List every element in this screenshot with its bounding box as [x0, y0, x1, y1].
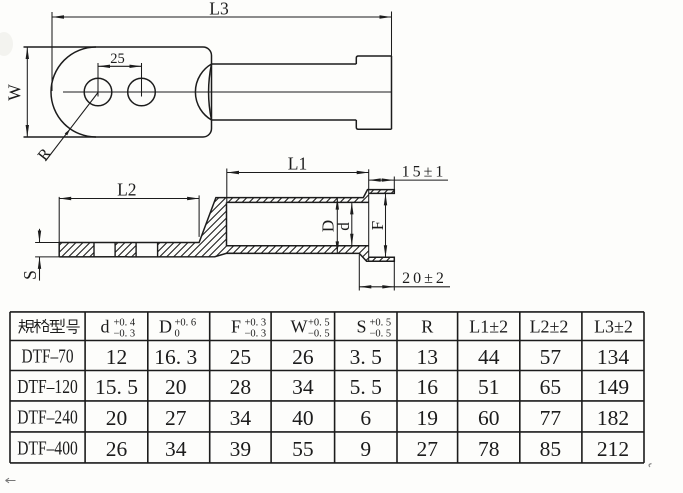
svg-text:F: F	[231, 317, 241, 337]
svg-text:16. 3: 16. 3	[154, 345, 197, 369]
svg-text:+0. 5: +0. 5	[308, 318, 330, 329]
svg-text:9: 9	[360, 437, 371, 461]
svg-text:26: 26	[106, 437, 128, 461]
svg-text:212: 212	[597, 437, 629, 461]
svg-text:34: 34	[230, 406, 252, 430]
svg-text:L2: L2	[117, 180, 136, 200]
svg-text:d: d	[334, 222, 353, 231]
svg-text:78: 78	[478, 437, 500, 461]
svg-text:DTF–120: DTF–120	[17, 377, 78, 398]
svg-text:40: 40	[292, 406, 314, 430]
svg-text:+0. 4: +0. 4	[114, 318, 136, 329]
svg-text:R: R	[421, 317, 433, 337]
svg-text:55: 55	[292, 437, 314, 461]
svg-text:51: 51	[478, 375, 500, 399]
svg-text:34: 34	[165, 437, 187, 461]
svg-text:12: 12	[106, 345, 128, 369]
svg-text:3. 5: 3. 5	[350, 345, 382, 369]
svg-text:L3±2: L3±2	[594, 317, 633, 337]
svg-text:F: F	[368, 221, 387, 230]
svg-text:d: d	[101, 317, 110, 337]
svg-text:20: 20	[165, 375, 187, 399]
svg-text:+0. 5: +0. 5	[370, 318, 392, 329]
svg-text:19: 19	[417, 406, 439, 430]
svg-text:26: 26	[292, 345, 314, 369]
svg-text:60: 60	[478, 406, 500, 430]
svg-text:25: 25	[230, 345, 252, 369]
svg-text:−0. 3: −0. 3	[114, 329, 136, 340]
svg-text:+0. 6: +0. 6	[175, 318, 197, 329]
svg-text:34: 34	[292, 375, 314, 399]
svg-text:20: 20	[106, 406, 128, 430]
svg-text:S: S	[20, 270, 40, 280]
svg-text:0: 0	[175, 329, 180, 340]
svg-text:15±1: 15±1	[402, 164, 447, 181]
svg-text:L2±2: L2±2	[530, 317, 569, 337]
svg-text:DTF–240: DTF–240	[17, 408, 78, 429]
svg-text:25: 25	[110, 51, 125, 67]
svg-text:134: 134	[597, 345, 630, 369]
svg-text:L3: L3	[209, 0, 229, 19]
svg-text:20±2: 20±2	[402, 270, 447, 287]
svg-text:+0. 3: +0. 3	[245, 318, 267, 329]
svg-text:S: S	[356, 317, 366, 337]
svg-text:6: 6	[360, 406, 371, 430]
svg-text:39: 39	[230, 437, 252, 461]
svg-text:27: 27	[165, 406, 187, 430]
svg-text:28: 28	[230, 375, 252, 399]
svg-text:149: 149	[597, 375, 629, 399]
svg-text:L1±2: L1±2	[469, 317, 508, 337]
svg-text:−0. 5: −0. 5	[370, 329, 392, 340]
svg-text:182: 182	[597, 406, 629, 430]
svg-text:DTF–70: DTF–70	[22, 347, 74, 368]
svg-text:44: 44	[478, 345, 500, 369]
svg-text:W: W	[5, 84, 25, 101]
svg-text:L1: L1	[288, 154, 307, 174]
svg-text:65: 65	[540, 375, 562, 399]
svg-text:5. 5: 5. 5	[350, 375, 382, 399]
svg-text:R: R	[35, 145, 55, 164]
svg-text:DTF–400: DTF–400	[17, 439, 78, 460]
svg-text:77: 77	[540, 406, 562, 430]
svg-text:−0. 5: −0. 5	[308, 329, 330, 340]
svg-text:57: 57	[540, 345, 562, 369]
svg-text:15. 5: 15. 5	[95, 375, 138, 399]
svg-text:16: 16	[417, 375, 439, 399]
svg-text:13: 13	[417, 345, 439, 369]
svg-text:W: W	[291, 317, 308, 337]
svg-text:−0. 3: −0. 3	[245, 329, 267, 340]
svg-text:27: 27	[417, 437, 439, 461]
svg-text:D: D	[159, 317, 172, 337]
svg-text:85: 85	[540, 437, 562, 461]
